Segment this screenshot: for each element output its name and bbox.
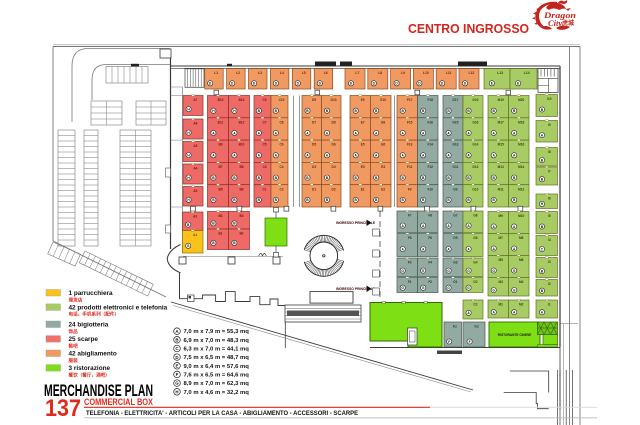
svg-text:I2: I2 xyxy=(548,282,551,286)
svg-text:服装: 服装 xyxy=(69,357,79,364)
svg-text:G4: G4 xyxy=(473,261,477,265)
svg-text:G9: G9 xyxy=(453,187,457,191)
svg-text:137: 137 xyxy=(45,395,81,422)
svg-text:E1: E1 xyxy=(361,187,365,191)
svg-text:F5: F5 xyxy=(408,236,412,240)
svg-text:电话，手机系列（配件）: 电话，手机系列（配件） xyxy=(69,311,120,318)
svg-text:G: G xyxy=(467,286,470,290)
svg-text:L9: L9 xyxy=(401,71,405,75)
svg-text:M14: M14 xyxy=(518,165,524,169)
svg-text:L3: L3 xyxy=(258,71,262,75)
svg-text:B1: B1 xyxy=(218,232,222,236)
svg-text:E4: E4 xyxy=(381,165,385,169)
svg-text:F3: F3 xyxy=(408,261,412,265)
svg-text:G5: G5 xyxy=(453,236,457,240)
svg-text:L6: L6 xyxy=(324,71,328,75)
svg-text:D6: D6 xyxy=(332,143,336,147)
svg-text:A7: A7 xyxy=(193,98,197,102)
svg-text:1 parrucchiera: 1 parrucchiera xyxy=(69,290,113,297)
svg-text:A3: A3 xyxy=(193,189,197,193)
svg-text:L5: L5 xyxy=(302,71,306,75)
svg-text:饰品: 饰品 xyxy=(68,328,79,335)
svg-text:F1: F1 xyxy=(408,280,412,284)
svg-text:D7: D7 xyxy=(312,120,316,124)
svg-text:24 bigiotteria: 24 bigiotteria xyxy=(69,322,109,329)
svg-text:G7: G7 xyxy=(453,214,457,218)
svg-text:M17: M17 xyxy=(498,120,504,124)
svg-text:G13: G13 xyxy=(452,143,458,147)
svg-text:M4: M4 xyxy=(519,280,524,284)
svg-text:G16: G16 xyxy=(472,120,478,124)
svg-text:7,6 m x 6,5 m = 64,6 mq: 7,6 m x 6,5 m = 64,6 mq xyxy=(184,372,250,378)
svg-text:G: G xyxy=(175,381,179,386)
svg-text:E9: E9 xyxy=(361,98,365,102)
svg-text:E6: E6 xyxy=(381,143,385,147)
svg-text:I5: I5 xyxy=(548,214,551,218)
svg-text:M11: M11 xyxy=(498,187,504,191)
svg-text:G14: G14 xyxy=(472,143,478,147)
svg-text:I3: I3 xyxy=(548,260,551,264)
svg-text:理发店: 理发店 xyxy=(69,296,83,303)
svg-text:C3: C3 xyxy=(262,165,266,169)
svg-text:M9: M9 xyxy=(498,214,503,218)
svg-text:F8: F8 xyxy=(428,214,432,218)
svg-text:G17: G17 xyxy=(452,98,458,102)
svg-text:E10: E10 xyxy=(380,98,386,102)
svg-text:D1: D1 xyxy=(312,187,316,191)
svg-text:25 scarpe: 25 scarpe xyxy=(69,336,99,343)
svg-text:7,0 m x 4,6 m = 32,2 mq: 7,0 m x 4,6 m = 32,2 mq xyxy=(184,390,250,396)
svg-text:L11: L11 xyxy=(446,71,452,75)
svg-text:C10: C10 xyxy=(279,98,285,102)
svg-text:8,9 m x 7,0 m = 62,3 mq: 8,9 m x 7,0 m = 62,3 mq xyxy=(184,381,250,387)
svg-text:G8: G8 xyxy=(473,214,477,218)
svg-text:G: G xyxy=(492,288,495,292)
svg-text:L7: L7 xyxy=(355,71,359,75)
svg-text:C5: C5 xyxy=(262,143,266,147)
svg-text:A2: A2 xyxy=(193,215,197,219)
svg-text:F6: F6 xyxy=(428,236,432,240)
svg-text:K1: K1 xyxy=(453,325,457,329)
svg-text:F18: F18 xyxy=(427,98,433,102)
svg-text:I4: I4 xyxy=(548,238,551,242)
svg-text:M5: M5 xyxy=(498,258,503,262)
svg-text:7,5 m x 6,5 m = 48,7 mq: 7,5 m x 6,5 m = 48,7 mq xyxy=(184,355,250,361)
svg-text:B4: B4 xyxy=(239,214,243,218)
svg-text:G: G xyxy=(513,269,516,273)
svg-text:L2: L2 xyxy=(236,71,240,75)
svg-text:D: D xyxy=(175,355,178,360)
svg-text:G: G xyxy=(492,269,495,273)
svg-text:B13: B13 xyxy=(218,98,224,102)
svg-text:C1: C1 xyxy=(262,187,266,191)
svg-text:3 ristorazione: 3 ristorazione xyxy=(69,365,111,372)
svg-text:I1: I1 xyxy=(548,303,551,307)
svg-text:L13: L13 xyxy=(497,71,503,75)
svg-text:G: G xyxy=(422,269,425,273)
svg-text:E: E xyxy=(176,363,179,368)
svg-text:M6: M6 xyxy=(519,258,524,262)
svg-text:A5: A5 xyxy=(193,144,197,148)
svg-text:D8: D8 xyxy=(332,120,336,124)
svg-text:M3: M3 xyxy=(498,280,503,284)
svg-text:F15: F15 xyxy=(407,120,413,124)
svg-text:A6: A6 xyxy=(193,122,197,126)
svg-text:M20: M20 xyxy=(518,98,524,102)
svg-text:B12: B12 xyxy=(239,120,245,124)
svg-text:E7: E7 xyxy=(361,120,365,124)
svg-text:B5: B5 xyxy=(218,187,222,191)
svg-text:TELEFONIA - ELETTRICITA' - ART: TELEFONIA - ELETTRICITA' - ARTICOLI PER … xyxy=(86,410,358,417)
svg-text:B6: B6 xyxy=(239,187,243,191)
svg-text:B11: B11 xyxy=(218,120,224,124)
svg-text:K2: K2 xyxy=(475,325,479,329)
svg-text:D9: D9 xyxy=(312,98,316,102)
svg-text:C2: C2 xyxy=(473,303,477,307)
svg-text:G15: G15 xyxy=(452,120,458,124)
svg-text:D3: D3 xyxy=(312,165,316,169)
svg-text:G3: G3 xyxy=(453,261,457,265)
svg-text:M18: M18 xyxy=(518,120,524,124)
svg-text:G19: G19 xyxy=(472,98,478,102)
svg-text:B: B xyxy=(175,337,178,342)
svg-text:B9: B9 xyxy=(218,143,222,147)
svg-text:E5: E5 xyxy=(361,143,365,147)
svg-text:F14: F14 xyxy=(427,143,433,147)
svg-text:餐饮（餐厅，酒吧）: 餐饮（餐厅，酒吧） xyxy=(68,371,110,378)
svg-text:F16: F16 xyxy=(427,120,433,124)
svg-text:L1: L1 xyxy=(214,71,218,75)
svg-text:B14: B14 xyxy=(239,98,245,102)
svg-text:C6: C6 xyxy=(279,143,283,147)
svg-text:6,3 m x 7,0 m = 44,1 mq: 6,3 m x 7,0 m = 44,1 mq xyxy=(184,347,250,353)
svg-text:F: F xyxy=(448,340,450,344)
svg-text:E8: E8 xyxy=(381,120,385,124)
svg-text:F9: F9 xyxy=(408,187,412,191)
svg-text:M7: M7 xyxy=(498,236,503,240)
svg-text:L8: L8 xyxy=(378,71,382,75)
svg-text:42 prodotti elettronici e tele: 42 prodotti elettronici e telefonia xyxy=(69,305,168,312)
svg-text:City: City xyxy=(548,18,562,28)
svg-text:F12: F12 xyxy=(427,165,433,169)
svg-text:E2: E2 xyxy=(381,187,385,191)
svg-text:42 abigliamento: 42 abigliamento xyxy=(69,351,117,358)
svg-text:D2: D2 xyxy=(332,187,336,191)
svg-text:F2: F2 xyxy=(428,280,432,284)
svg-text:CENTRO INGROSSO: CENTRO INGROSSO xyxy=(408,21,529,36)
svg-text:G: G xyxy=(447,269,450,273)
svg-text:G2: G2 xyxy=(473,280,477,284)
svg-text:E3: E3 xyxy=(361,165,365,169)
svg-text:G: G xyxy=(467,269,470,273)
svg-text:G11: G11 xyxy=(452,165,458,169)
svg-text:I6: I6 xyxy=(548,197,551,201)
svg-text:B3: B3 xyxy=(218,214,222,218)
svg-text:L10: L10 xyxy=(423,71,429,75)
svg-text:G: G xyxy=(513,288,516,292)
svg-text:G: G xyxy=(401,269,404,273)
svg-text:I8: I8 xyxy=(548,150,551,154)
svg-text:C8: C8 xyxy=(279,120,283,124)
svg-text:M8: M8 xyxy=(519,236,524,240)
svg-text:F13: F13 xyxy=(407,143,413,147)
svg-text:I7: I7 xyxy=(548,170,551,174)
svg-text:D4: D4 xyxy=(332,165,336,169)
svg-text:M12: M12 xyxy=(518,187,524,191)
svg-text:C4: C4 xyxy=(279,165,283,169)
svg-text:6,9 m x 7,0 m = 48,3 mq: 6,9 m x 7,0 m = 48,3 mq xyxy=(184,338,250,344)
svg-text:I9: I9 xyxy=(548,123,551,127)
svg-text:L12: L12 xyxy=(468,71,474,75)
svg-text:9,0 m x 6,4 m = 57,6 mq: 9,0 m x 6,4 m = 57,6 mq xyxy=(184,364,250,370)
svg-text:F10: F10 xyxy=(427,187,433,191)
svg-text:7,0 m x 7,9 m = 55,3 mq: 7,0 m x 7,9 m = 55,3 mq xyxy=(184,329,250,335)
svg-text:A4: A4 xyxy=(193,167,197,171)
svg-text:C9: C9 xyxy=(262,98,266,102)
svg-text:G: G xyxy=(422,286,425,290)
svg-text:B8: B8 xyxy=(239,165,243,169)
svg-text:A1: A1 xyxy=(193,233,197,237)
svg-text:D10: D10 xyxy=(331,98,337,102)
svg-text:M1: M1 xyxy=(498,303,503,307)
svg-text:M2: M2 xyxy=(519,303,524,307)
svg-text:M19: M19 xyxy=(498,98,504,102)
svg-text:B2: B2 xyxy=(239,232,243,236)
svg-text:F17: F17 xyxy=(407,98,413,102)
svg-text:F: F xyxy=(469,340,471,344)
svg-text:M16: M16 xyxy=(518,143,524,147)
svg-text:虎城: 虎城 xyxy=(562,19,574,27)
svg-text:G: G xyxy=(187,244,190,248)
svg-text:B10: B10 xyxy=(239,143,245,147)
svg-text:RISTORANTE CINESE: RISTORANTE CINESE xyxy=(498,333,531,337)
svg-text:G: G xyxy=(447,286,450,290)
svg-text:G6: G6 xyxy=(473,236,477,240)
svg-text:M10: M10 xyxy=(518,214,524,218)
svg-text:G12: G12 xyxy=(472,165,478,169)
svg-text:H: H xyxy=(175,389,178,394)
svg-text:L14: L14 xyxy=(524,71,530,75)
svg-text:B7: B7 xyxy=(218,165,222,169)
svg-text:G10: G10 xyxy=(472,187,478,191)
svg-text:G: G xyxy=(401,286,404,290)
svg-text:M15: M15 xyxy=(498,143,504,147)
svg-text:C7: C7 xyxy=(262,120,266,124)
svg-text:M13: M13 xyxy=(498,165,504,169)
svg-text:F11: F11 xyxy=(407,165,413,169)
svg-text:C2: C2 xyxy=(279,187,283,191)
svg-text:鞋吧: 鞋吧 xyxy=(69,342,79,349)
svg-text:F: F xyxy=(176,372,179,377)
svg-text:D5: D5 xyxy=(312,143,316,147)
svg-text:G1: G1 xyxy=(453,280,457,284)
svg-text:L4: L4 xyxy=(280,71,284,75)
svg-text:COMMERCIAL BOX: COMMERCIAL BOX xyxy=(84,397,153,407)
svg-text:I10: I10 xyxy=(547,97,552,101)
svg-text:F4: F4 xyxy=(428,261,432,265)
svg-text:F7: F7 xyxy=(408,214,412,218)
